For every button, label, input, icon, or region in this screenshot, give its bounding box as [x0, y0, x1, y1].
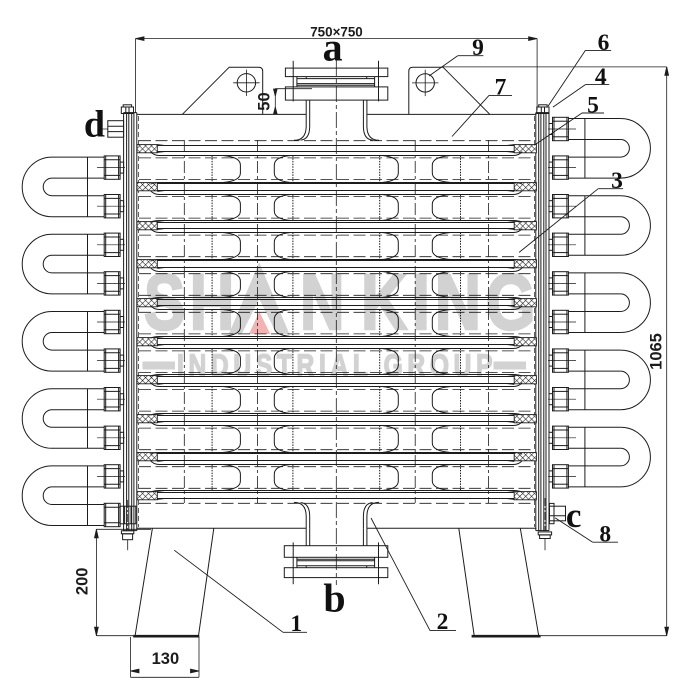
svg-text:1065: 1065: [648, 333, 666, 370]
svg-text:a: a: [323, 24, 343, 69]
svg-text:2: 2: [437, 609, 449, 635]
svg-text:3: 3: [611, 168, 623, 194]
svg-text:1: 1: [290, 611, 302, 637]
svg-text:130: 130: [152, 650, 180, 668]
svg-text:6: 6: [598, 30, 610, 56]
svg-text:4: 4: [595, 64, 607, 90]
svg-text:5: 5: [587, 92, 599, 118]
svg-text:9: 9: [472, 35, 484, 61]
svg-text:d: d: [84, 103, 105, 145]
svg-text:c: c: [566, 496, 582, 535]
svg-text:200: 200: [74, 568, 92, 596]
svg-text:b: b: [323, 576, 345, 621]
svg-text:7: 7: [495, 75, 507, 101]
svg-text:50: 50: [256, 92, 274, 110]
svg-text:8: 8: [599, 522, 611, 548]
